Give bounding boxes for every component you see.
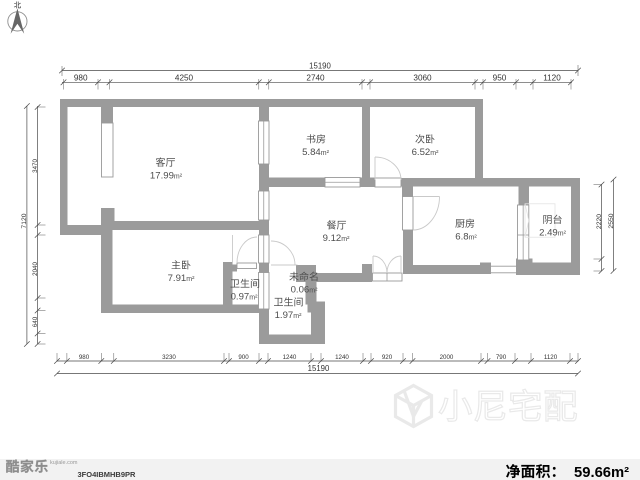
svg-text:1240: 1240 — [335, 354, 349, 361]
svg-text:1120: 1120 — [543, 74, 561, 83]
svg-text:7120: 7120 — [21, 213, 28, 228]
svg-text:2550: 2550 — [608, 213, 615, 228]
svg-text:59.66m²: 59.66m² — [574, 465, 629, 480]
svg-text:1120: 1120 — [544, 354, 558, 361]
svg-text:900: 900 — [238, 354, 249, 361]
svg-text:3060: 3060 — [413, 74, 432, 83]
svg-text:2000: 2000 — [440, 354, 454, 361]
svg-text:3470: 3470 — [32, 159, 39, 173]
svg-text:980: 980 — [74, 74, 88, 83]
svg-text:2040: 2040 — [32, 262, 39, 276]
svg-text:950: 950 — [493, 74, 507, 83]
svg-text:4250: 4250 — [175, 74, 194, 83]
svg-text:3FO4IBMHB9PR: 3FO4IBMHB9PR — [78, 470, 137, 479]
svg-text:640: 640 — [32, 316, 39, 327]
svg-text:15190: 15190 — [309, 61, 331, 70]
svg-text:790: 790 — [496, 354, 507, 361]
svg-text:3230: 3230 — [162, 354, 176, 361]
svg-text:980: 980 — [79, 354, 90, 361]
svg-text:920: 920 — [382, 354, 393, 361]
svg-text:2220: 2220 — [596, 214, 603, 229]
svg-text:1240: 1240 — [283, 354, 297, 361]
svg-text:kujiale.com: kujiale.com — [50, 460, 78, 466]
svg-text:15190: 15190 — [308, 364, 330, 373]
svg-text:2740: 2740 — [306, 74, 325, 83]
